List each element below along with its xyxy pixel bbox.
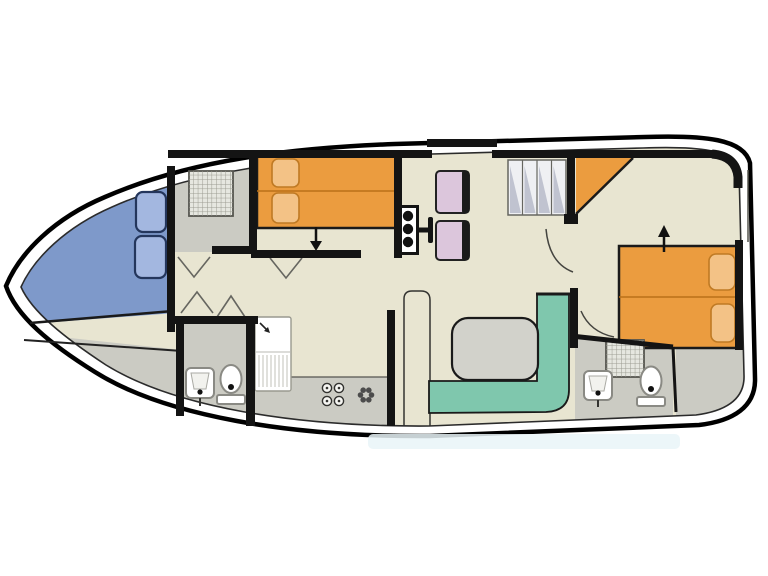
deck-door-bar [427, 139, 497, 147]
aft-bed-pillow-1 [709, 254, 735, 290]
wall-aft-bed-right [735, 240, 743, 350]
wall-top-starboard [492, 150, 716, 158]
wall-saloon-left [394, 150, 402, 258]
wall-saloon-right-cap [564, 214, 578, 224]
forward-bed-pillow-1 [272, 159, 299, 187]
fridge-sink-unit [255, 317, 291, 391]
wall-bathroom-port-right [246, 316, 255, 426]
wall-shower-right [249, 150, 257, 254]
bow-cushion-2 [135, 236, 166, 278]
wall-bathroom-port-left [176, 320, 184, 416]
bow-cushion-1 [136, 192, 166, 232]
dinette-chair-2 [436, 221, 469, 260]
saloon-table [452, 318, 538, 380]
wall-cabin-bottom-a [212, 246, 254, 254]
aft-bed-pillow-2 [711, 304, 735, 342]
forward-shower-tray [189, 171, 233, 216]
floorplan-canvas [0, 0, 768, 576]
counter-peninsula [404, 291, 430, 427]
companionway-stairs [508, 160, 566, 215]
wall-cabin-bottom-b [251, 250, 361, 258]
wall-galley-right [387, 310, 395, 426]
wall-top-port [168, 150, 432, 158]
watermark-strip [368, 434, 680, 449]
wall-bow-bulkhead [167, 166, 175, 332]
forward-bed-pillow-2 [272, 193, 299, 223]
dinette-chair-1 [436, 171, 469, 213]
floorplan-page [0, 0, 768, 576]
wall-saloon-right-upper [567, 150, 575, 224]
